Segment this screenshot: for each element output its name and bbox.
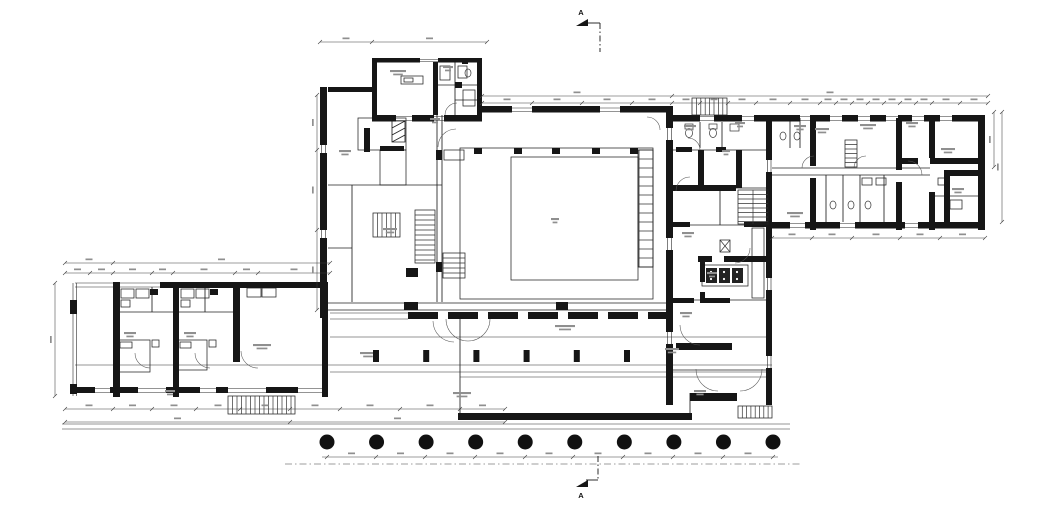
column xyxy=(617,435,632,450)
bed xyxy=(178,340,207,370)
door-swings-layer xyxy=(135,103,922,391)
glazing-lines-layer xyxy=(62,60,985,430)
column xyxy=(567,435,582,450)
colonnade-layer xyxy=(320,435,781,450)
hall-boundary xyxy=(460,148,653,299)
room-labels-layer xyxy=(124,66,964,397)
corridor-pilasters-layer xyxy=(373,350,630,362)
column xyxy=(369,435,384,450)
pilaster xyxy=(473,350,479,362)
column xyxy=(666,435,681,450)
column xyxy=(419,435,434,450)
column xyxy=(518,435,533,450)
section-marker-bottom: A xyxy=(576,456,598,500)
column xyxy=(716,435,731,450)
pilaster xyxy=(624,350,630,362)
section-label-bottom: A xyxy=(578,491,584,500)
kitchen-counter xyxy=(752,228,764,298)
section-label-top: A xyxy=(578,8,584,17)
pilaster xyxy=(373,350,379,362)
pilaster xyxy=(524,350,530,362)
column xyxy=(766,435,781,450)
column xyxy=(468,435,483,450)
pilaster xyxy=(423,350,429,362)
floor-plan-drawing: A A xyxy=(0,0,1045,506)
pilaster xyxy=(574,350,580,362)
section-marker-top: A xyxy=(576,8,600,52)
column xyxy=(320,435,335,450)
hall-inner-square xyxy=(511,157,638,280)
floor-plan-canvas: A A xyxy=(0,0,1045,506)
dimension-lines-layer xyxy=(50,38,1004,465)
